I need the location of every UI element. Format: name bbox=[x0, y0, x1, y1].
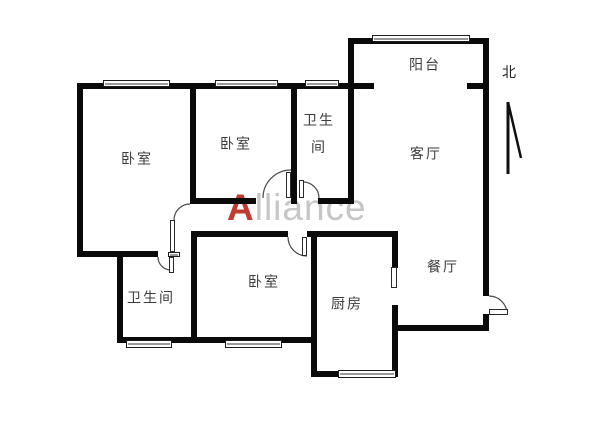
room-label-bedroom-1: 卧室 bbox=[121, 147, 153, 174]
right-wall-upper bbox=[483, 38, 489, 296]
window-balcony-top bbox=[372, 35, 470, 42]
room-label-bedroom-3: 卧室 bbox=[248, 270, 280, 297]
hall-upper-wall-left bbox=[190, 198, 256, 204]
door-leaf-bedroom3 bbox=[302, 237, 307, 256]
window-bedroom1-top bbox=[103, 80, 170, 87]
balcony-sill-right bbox=[467, 83, 489, 89]
floorplan-canvas: Alliance 北 卧室卧室卫生 间阳台客厅餐厅厨房卧室卫生间 bbox=[0, 0, 600, 425]
door-leaf-entry bbox=[489, 309, 508, 315]
window-bathroom2-bottom bbox=[126, 340, 172, 348]
kitchen-left-wall bbox=[311, 231, 317, 377]
north-arrow-line-2 bbox=[508, 102, 521, 158]
hall-lower-wall-right bbox=[307, 231, 398, 237]
room-label-bathroom-1: 卫生 间 bbox=[303, 108, 335, 162]
divider-bed1-bed2 bbox=[190, 83, 196, 204]
balcony-sill-left bbox=[348, 83, 374, 89]
window-bedroom2-top bbox=[215, 80, 278, 87]
left-wall bbox=[77, 83, 83, 257]
room-label-bathroom-2: 卫生间 bbox=[127, 286, 175, 313]
kitchen-right-wall-lower bbox=[392, 305, 398, 377]
window-bedroom3-bottom bbox=[225, 340, 282, 348]
dining-bottom-wall bbox=[392, 325, 489, 331]
door-leaf-bathroom2 bbox=[169, 257, 174, 273]
threshold-bathroom2 bbox=[168, 252, 180, 257]
divider-bath2-bed3 bbox=[191, 231, 197, 343]
room-label-balcony: 阳台 bbox=[409, 53, 441, 80]
room-label-kitchen: 厨房 bbox=[331, 292, 363, 319]
door-leaf-kitchen bbox=[391, 267, 397, 288]
divider-bed2-bath1 bbox=[291, 83, 297, 204]
room-label-dining-room: 餐厅 bbox=[427, 255, 459, 282]
door-leaf-bedroom1 bbox=[170, 220, 175, 252]
door-leaf-bedroom2 bbox=[286, 172, 291, 198]
window-bathroom1-top bbox=[305, 80, 339, 87]
watermark-prefix: A bbox=[227, 187, 255, 228]
window-kitchen-bottom bbox=[338, 370, 396, 378]
north-label: 北 bbox=[502, 62, 516, 82]
bath2-left-wall bbox=[117, 251, 123, 343]
door-arc-bedroom1 bbox=[174, 204, 190, 220]
door-leaf-bathroom1 bbox=[299, 180, 304, 198]
room-label-living-room: 客厅 bbox=[410, 142, 442, 169]
kitchen-right-wall-upper bbox=[392, 231, 398, 268]
room-label-bedroom-2: 卧室 bbox=[220, 132, 252, 159]
hall-upper-wall-right bbox=[318, 198, 354, 204]
balcony-left-wall bbox=[348, 38, 354, 203]
hall-lower-wall-left bbox=[191, 231, 288, 237]
